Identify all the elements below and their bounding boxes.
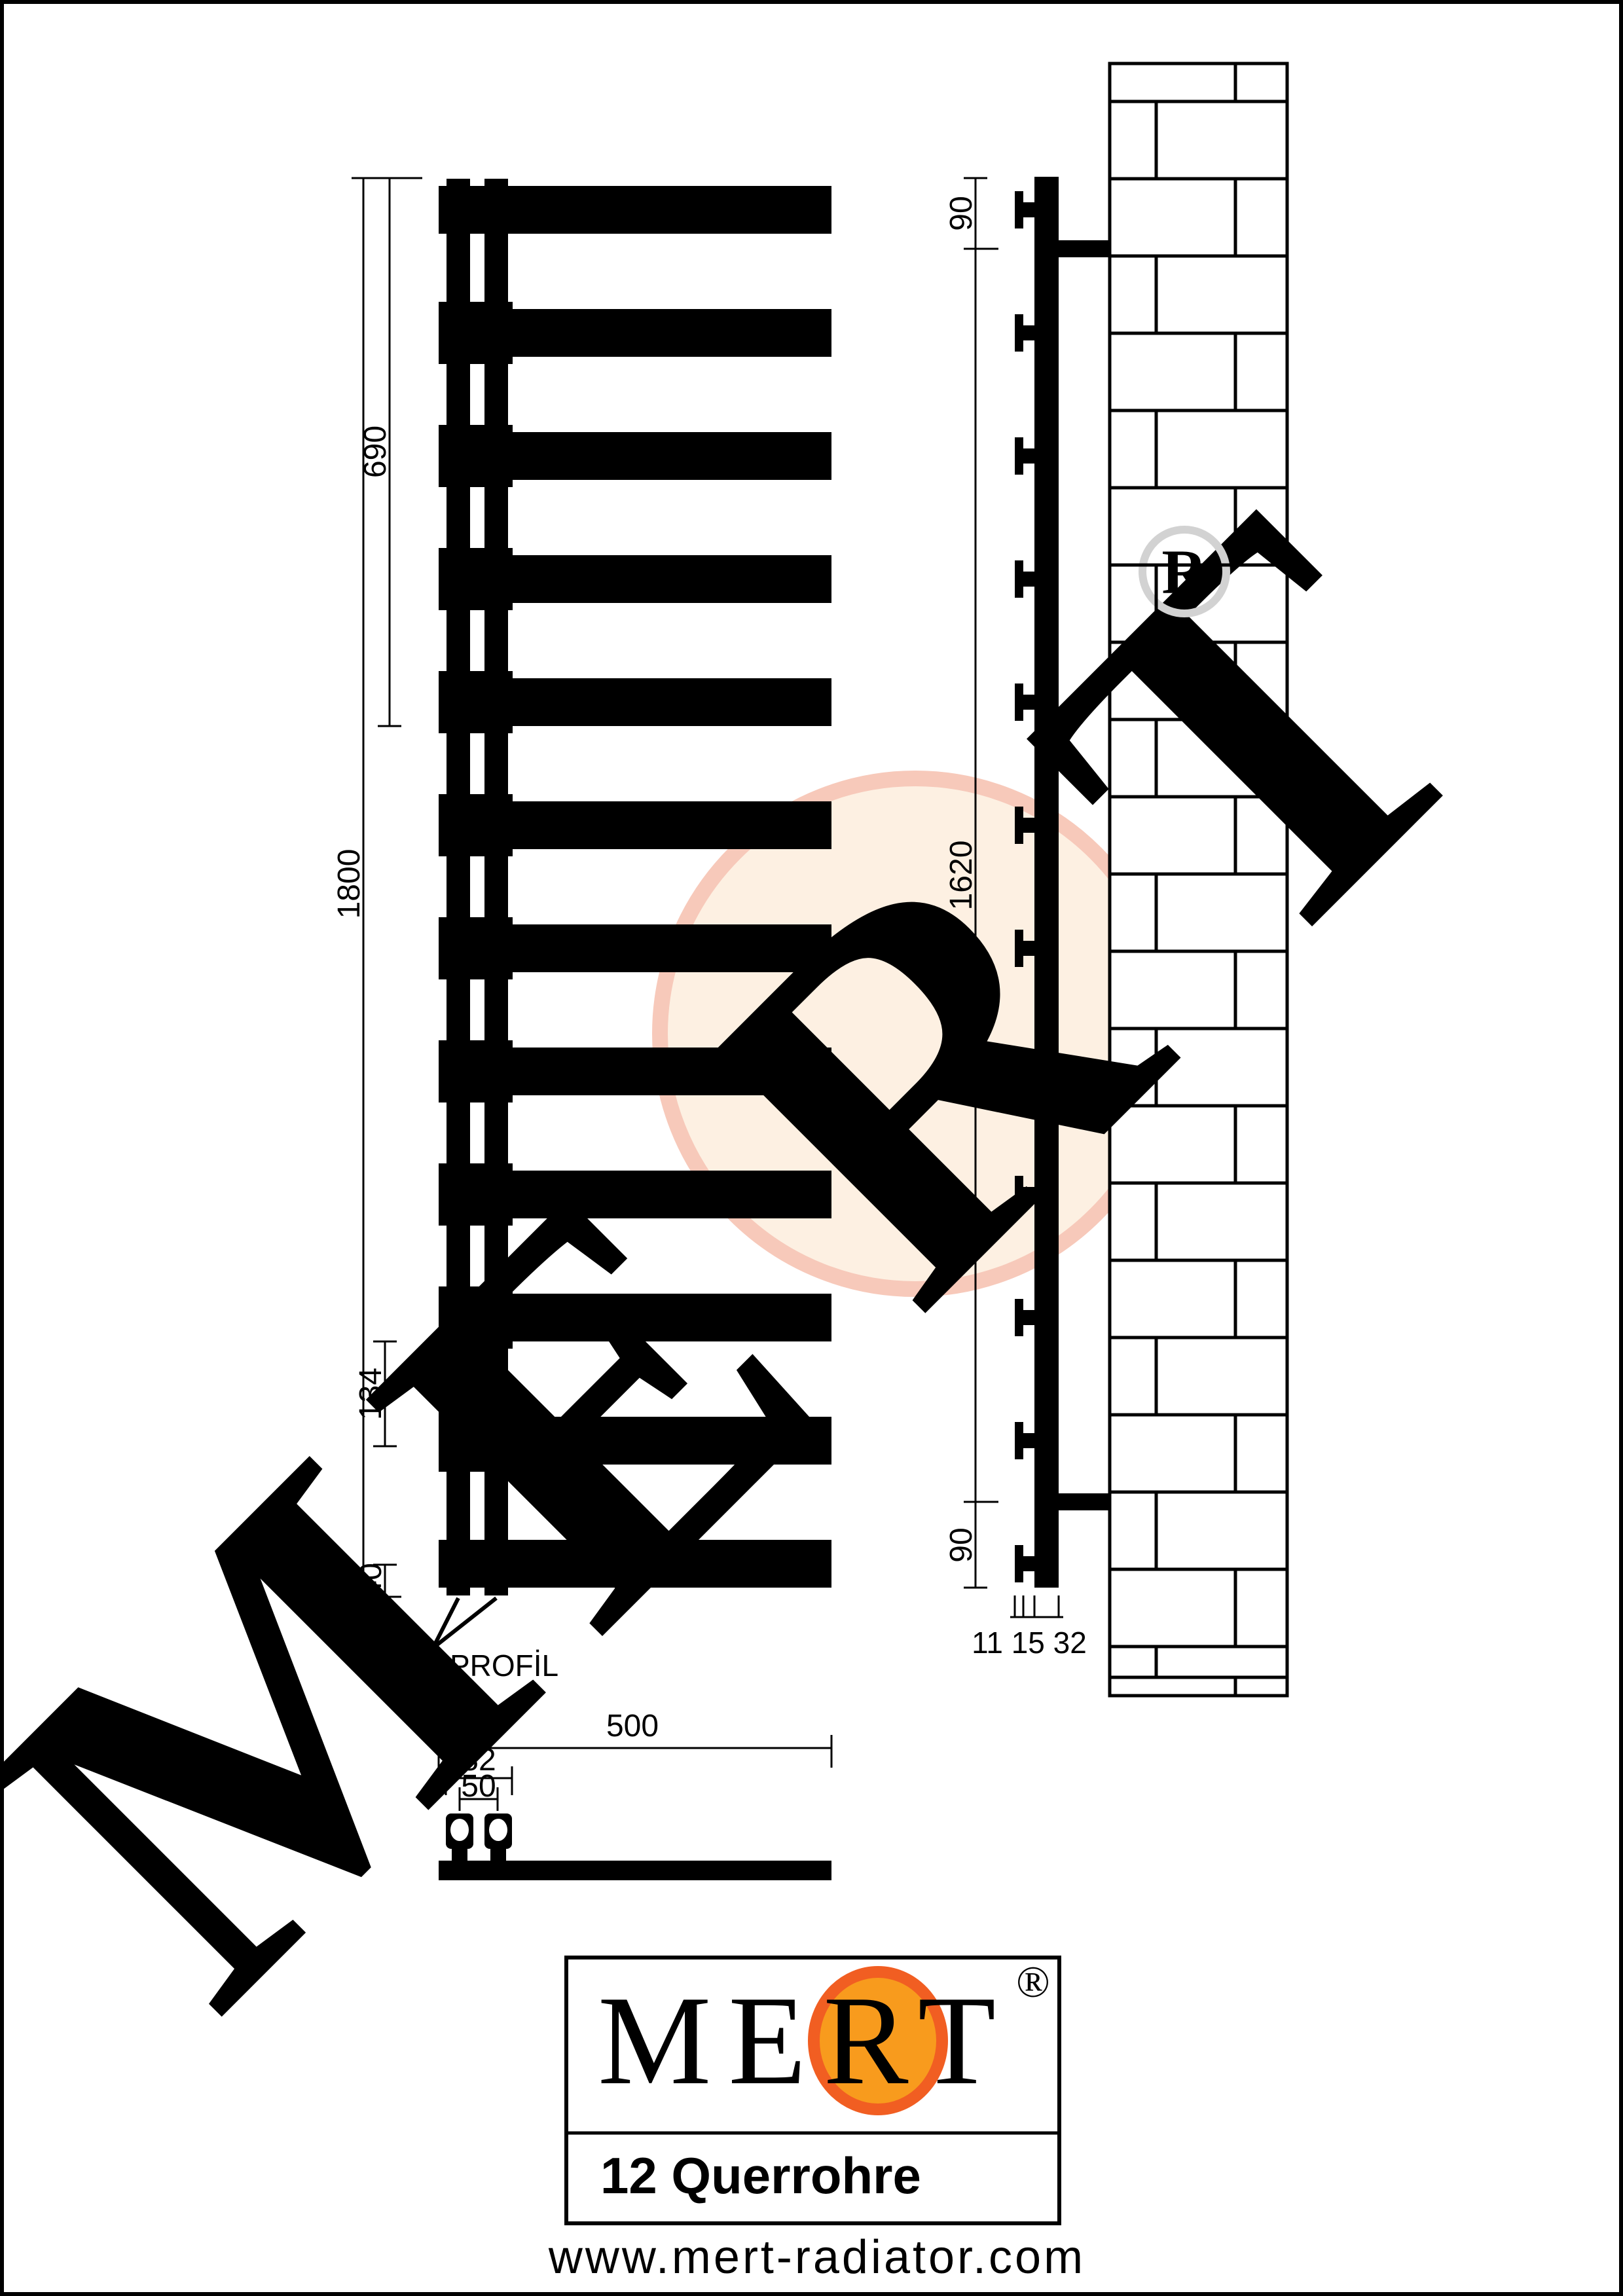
profile-label: 32x32 PROFİL xyxy=(359,1649,558,1683)
side-tube-neck xyxy=(1023,1064,1034,1079)
side-tube-neck xyxy=(1023,1556,1034,1571)
wall-bracket-top xyxy=(1059,240,1110,257)
front-rail-left-bottom-stub xyxy=(447,1588,470,1595)
side-tube-neck xyxy=(1023,941,1034,956)
logo-block: MERT ® 12 Querrohre xyxy=(566,1957,1059,2223)
logo-registered-icon: ® xyxy=(1016,1957,1050,2007)
side-tube-stub xyxy=(1015,1299,1023,1336)
side-tube-neck xyxy=(1023,1310,1034,1325)
front-tube xyxy=(439,1417,831,1465)
dim-label-690: 690 xyxy=(358,426,393,478)
side-tube-neck xyxy=(1023,818,1034,833)
front-tube xyxy=(439,1540,831,1588)
front-rail-right-top-stub xyxy=(484,179,508,187)
front-tube xyxy=(439,432,831,480)
side-tube-stub xyxy=(1015,1422,1023,1459)
side-tube-neck xyxy=(1023,448,1034,464)
front-tube xyxy=(439,1294,831,1341)
dim-label-1800: 1800 xyxy=(332,849,367,919)
front-tube xyxy=(439,309,831,357)
website-url: www.mert-radiator.com xyxy=(548,2231,1085,2284)
plan-neck-left xyxy=(452,1848,467,1862)
side-tube-stub xyxy=(1015,560,1023,598)
front-tube xyxy=(439,801,831,849)
side-tube-stub xyxy=(1015,1176,1023,1213)
side-tube-stub xyxy=(1015,1053,1023,1090)
side-tube-stub xyxy=(1015,930,1023,967)
svg-text:R: R xyxy=(1161,537,1208,607)
plan-flat-tube xyxy=(439,1861,831,1880)
side-tube-neck xyxy=(1023,572,1034,587)
front-tube xyxy=(439,186,831,234)
side-tube-stub xyxy=(1015,1545,1023,1582)
wall-bracket-bottom xyxy=(1059,1493,1110,1510)
plan-profile-left-hole xyxy=(450,1819,469,1841)
side-profile xyxy=(1034,177,1059,1588)
side-tube-neck xyxy=(1023,325,1034,340)
side-tube-neck xyxy=(1023,1187,1034,1202)
side-tube-stub xyxy=(1015,807,1023,844)
logo-product-name: 12 Querrohre xyxy=(600,2147,921,2204)
plan-profile-right-hole xyxy=(489,1819,507,1841)
dim-label-40: 40 xyxy=(354,1563,388,1597)
front-tube xyxy=(439,678,831,726)
side-tube-stub xyxy=(1015,437,1023,475)
front-rail-right-bottom-stub xyxy=(484,1588,508,1595)
dim-label-11-15-32: 11 15 32 xyxy=(972,1626,1087,1660)
drawing-page: M E R T R xyxy=(0,0,1623,2296)
side-tube-stub xyxy=(1015,683,1023,721)
dim-label-134: 134 xyxy=(354,1368,388,1420)
front-rail-left xyxy=(447,186,470,1588)
side-tube-neck xyxy=(1023,202,1034,217)
front-tube xyxy=(439,1048,831,1095)
dim-label-50: 50 xyxy=(461,1769,496,1804)
dim-label-90-bottom: 90 xyxy=(944,1527,979,1562)
front-rail-right xyxy=(484,186,508,1588)
side-tube-stub xyxy=(1015,314,1023,352)
dim-label-1620: 1620 xyxy=(944,841,979,911)
dim-label-90-top: 90 xyxy=(944,196,979,230)
side-tube-neck xyxy=(1023,695,1034,710)
front-rail-left-top-stub xyxy=(447,179,470,187)
plan-neck-right xyxy=(490,1848,506,1862)
side-tube-stub xyxy=(1015,191,1023,228)
front-tube xyxy=(439,1171,831,1218)
side-tube-neck xyxy=(1023,1433,1034,1448)
front-tube xyxy=(439,555,831,603)
logo-brand-text: MERT xyxy=(598,1970,1013,2111)
front-tube xyxy=(439,924,831,972)
dim-label-500: 500 xyxy=(606,1709,659,1743)
